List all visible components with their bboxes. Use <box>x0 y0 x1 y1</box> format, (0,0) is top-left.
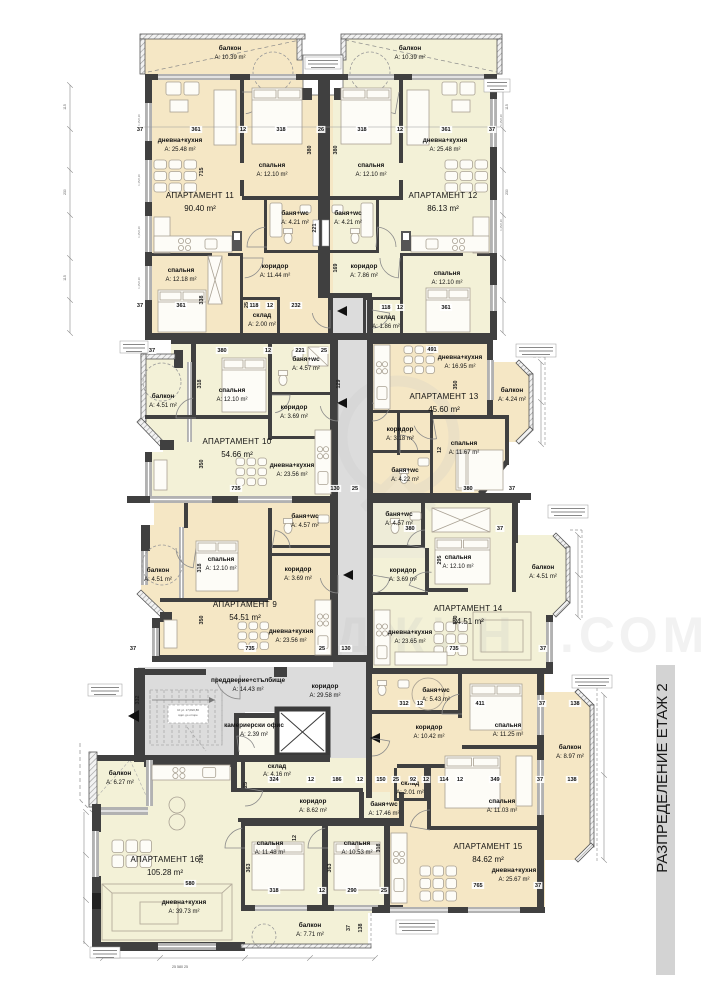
svg-text:балкон: балкон <box>219 44 242 52</box>
svg-text:1F ул. 17,09/2,86: 1F ул. 17,09/2,86 <box>177 708 199 712</box>
svg-text:балкон: балкон <box>299 921 322 929</box>
svg-text:338: 338 <box>199 296 205 305</box>
svg-text:А: 8.97 m²: А: 8.97 m² <box>556 754 584 760</box>
svg-text:спальня: спальня <box>344 840 371 847</box>
svg-text:118: 118 <box>249 303 258 309</box>
svg-text:А: 11.03 m²: А: 11.03 m² <box>487 808 518 814</box>
svg-text:А: 29.58 m²: А: 29.58 m² <box>309 693 340 699</box>
svg-text:А: 11.48 m²: А: 11.48 m² <box>255 850 286 856</box>
svg-text:37: 37 <box>130 646 136 652</box>
svg-text:780: 780 <box>199 855 205 864</box>
svg-text:138: 138 <box>358 924 364 933</box>
svg-text:дневна+кухня: дневна+кухня <box>423 137 468 144</box>
svg-text:361: 361 <box>441 305 450 311</box>
svg-text:спальня: спальня <box>358 162 385 169</box>
svg-text:318: 318 <box>357 127 366 133</box>
svg-text:дневна+кухня: дневна+кухня <box>162 899 207 906</box>
svg-text:А: 3.69 m²: А: 3.69 m² <box>280 414 308 420</box>
svg-text:25: 25 <box>393 777 399 783</box>
svg-text:350: 350 <box>453 616 459 625</box>
svg-text:балкон: балкон <box>152 392 175 400</box>
svg-text:12: 12 <box>240 127 246 133</box>
svg-text:380: 380 <box>307 146 313 155</box>
svg-text:А: 7.86 m²: А: 7.86 m² <box>350 273 378 279</box>
svg-text:А: 1.86 m²: А: 1.86 m² <box>372 324 400 330</box>
svg-text:камериерски офис: камериерски офис <box>224 722 284 729</box>
svg-text:коридор: коридор <box>300 798 327 805</box>
svg-text:25: 25 <box>352 486 358 492</box>
svg-text:склад: склад <box>377 314 396 321</box>
svg-text:318: 318 <box>197 564 203 573</box>
svg-text:349: 349 <box>490 777 499 783</box>
svg-text:А: 25.67 m²: А: 25.67 m² <box>498 877 529 883</box>
svg-text:А: 12.10 m²: А: 12.10 m² <box>205 566 236 572</box>
svg-text:баня+wc: баня+wc <box>334 209 362 217</box>
svg-text:84.62 m²: 84.62 m² <box>472 855 504 864</box>
svg-text:37: 37 <box>346 925 352 931</box>
svg-text:А: 3.18 m²: А: 3.18 m² <box>386 436 414 442</box>
svg-text:спальня: спальня <box>259 162 286 169</box>
svg-text:37: 37 <box>537 777 543 783</box>
svg-text:332: 332 <box>135 696 141 705</box>
svg-text:А: 39.73 m²: А: 39.73 m² <box>168 909 199 915</box>
svg-text:А: 4.21 m²: А: 4.21 m² <box>281 220 309 226</box>
svg-text:баня+wc: баня+wc <box>281 209 309 217</box>
svg-text:преддверие+стълбище: преддверие+стълбище <box>211 676 286 684</box>
svg-text:А: 12.10 m²: А: 12.10 m² <box>256 172 287 178</box>
svg-text:А: 4.24 m²: А: 4.24 m² <box>498 397 526 403</box>
svg-text:А: 4.51 m²: А: 4.51 m² <box>149 403 177 409</box>
svg-text:715: 715 <box>199 168 205 177</box>
svg-text:25: 25 <box>319 646 325 652</box>
svg-text:АПАРТАМЕНТ 13: АПАРТАМЕНТ 13 <box>410 392 479 401</box>
svg-text:115: 115 <box>63 275 67 281</box>
svg-text:баня+wc: баня+wc <box>385 510 413 518</box>
svg-text:коридор: коридор <box>387 426 414 433</box>
svg-text:А: 12.10 m²: А: 12.10 m² <box>431 280 462 286</box>
svg-text:318: 318 <box>276 127 285 133</box>
svg-text:25: 25 <box>244 302 250 308</box>
svg-text:дневна+кухня: дневна+кухня <box>492 867 537 874</box>
svg-text:баня+wc: баня+wc <box>391 466 419 474</box>
svg-text:37: 37 <box>137 127 143 133</box>
svg-text:295: 295 <box>437 556 443 565</box>
svg-text:А: 10.39 m²: А: 10.39 m² <box>214 55 245 61</box>
svg-text:54.51 m²: 54.51 m² <box>229 613 261 622</box>
svg-text:балкон: балкон <box>399 44 422 52</box>
svg-text:А: 7.71 m²: А: 7.71 m² <box>296 932 324 938</box>
svg-text:1,15/2,30: 1,15/2,30 <box>137 277 141 289</box>
svg-text:37: 37 <box>509 486 515 492</box>
svg-text:АПАРТАМЕНТ 10: АПАРТАМЕНТ 10 <box>203 437 272 446</box>
svg-text:735: 735 <box>449 646 458 652</box>
svg-text:12: 12 <box>292 835 298 841</box>
svg-text:361: 361 <box>441 127 450 133</box>
svg-text:спальня: спальня <box>489 798 516 805</box>
svg-text:25 580 25: 25 580 25 <box>172 965 188 969</box>
svg-text:балкон: балкон <box>109 769 132 777</box>
svg-text:склад: склад <box>268 763 287 770</box>
svg-text:411: 411 <box>475 701 484 707</box>
svg-text:735: 735 <box>245 646 254 652</box>
svg-text:12: 12 <box>423 777 429 783</box>
svg-text:А: 10.53 m²: А: 10.53 m² <box>341 850 372 856</box>
svg-text:дневна+кухня: дневна+кухня <box>269 628 314 635</box>
svg-text:А: 4.51 m²: А: 4.51 m² <box>529 574 557 580</box>
svg-text:А: 12.10 m²: А: 12.10 m² <box>442 564 473 570</box>
svg-text:12: 12 <box>319 888 325 894</box>
svg-text:РАЗПРЕДЕЛЕНИЕ ЕТАЖ 2: РАЗПРЕДЕЛЕНИЕ ЕТАЖ 2 <box>654 683 671 873</box>
svg-text:А: 8.62 m²: А: 8.62 m² <box>299 808 327 814</box>
svg-text:АПАРТАМЕНТ 11: АПАРТАМЕНТ 11 <box>166 191 235 200</box>
svg-text:А: 14.43 m²: А: 14.43 m² <box>232 687 263 693</box>
svg-text:12: 12 <box>457 777 463 783</box>
svg-text:А: 12.10 m²: А: 12.10 m² <box>355 172 386 178</box>
svg-text:12: 12 <box>417 701 423 707</box>
svg-text:138: 138 <box>570 701 579 707</box>
svg-text:коридор: коридор <box>262 263 289 270</box>
svg-text:130: 130 <box>341 646 350 652</box>
svg-text:37: 37 <box>540 646 546 652</box>
svg-text:230: 230 <box>505 189 509 195</box>
svg-text:350: 350 <box>199 616 205 625</box>
svg-text:221: 221 <box>312 224 318 233</box>
svg-text:А: 2.00 m²: А: 2.00 m² <box>248 322 276 328</box>
svg-text:балкон: балкон <box>501 386 524 394</box>
svg-text:318: 318 <box>376 844 382 853</box>
svg-text:спальня: спальня <box>257 840 284 847</box>
svg-text:А: 16.95 m²: А: 16.95 m² <box>444 364 475 370</box>
svg-text:А: 23.56 m²: А: 23.56 m² <box>275 638 306 644</box>
svg-text:А: 4.51 m²: А: 4.51 m² <box>144 577 172 583</box>
svg-text:балкон: балкон <box>559 743 582 751</box>
svg-text:232: 232 <box>291 303 300 309</box>
svg-text:А: 2.01 m²: А: 2.01 m² <box>396 790 424 796</box>
svg-text:А: 23.65 m²: А: 23.65 m² <box>394 639 425 645</box>
svg-text:380: 380 <box>217 348 226 354</box>
svg-text:25: 25 <box>243 782 249 788</box>
svg-text:90.40 m²: 90.40 m² <box>184 204 216 213</box>
svg-text:коридор: коридор <box>312 683 339 690</box>
svg-text:1,15/2,30: 1,15/2,30 <box>137 114 141 126</box>
svg-text:324: 324 <box>269 777 279 783</box>
svg-text:37: 37 <box>489 127 495 133</box>
svg-text:129: 129 <box>336 380 342 389</box>
svg-text:вдиг. до отгоре: вдиг. до отгоре <box>178 713 198 717</box>
svg-text:баня+wc: баня+wc <box>292 355 320 363</box>
svg-text:1,15/2,30: 1,15/2,30 <box>137 226 141 238</box>
svg-text:баня+wc: баня+wc <box>422 686 450 694</box>
svg-text:А: 3.69 m²: А: 3.69 m² <box>389 577 417 583</box>
svg-text:169: 169 <box>333 264 339 273</box>
svg-text:коридор: коридор <box>390 567 417 574</box>
svg-text:318: 318 <box>197 380 203 389</box>
svg-text:А: 11.44 m²: А: 11.44 m² <box>260 273 291 279</box>
svg-text:коридор: коридор <box>285 566 312 573</box>
svg-text:12: 12 <box>397 305 403 311</box>
svg-text:коридор: коридор <box>351 263 378 270</box>
svg-text:А: 10.39 m²: А: 10.39 m² <box>394 55 425 61</box>
svg-text:дневна+кухня: дневна+кухня <box>158 137 203 144</box>
svg-text:АПАРТАМЕНТ 12: АПАРТАМЕНТ 12 <box>409 191 478 200</box>
svg-text:138: 138 <box>567 777 576 783</box>
svg-text:54.66 m²: 54.66 m² <box>221 450 253 459</box>
svg-text:37: 37 <box>137 303 143 309</box>
svg-text:АПАРТАМЕНТ 14: АПАРТАМЕНТ 14 <box>434 604 503 613</box>
svg-text:А: 4.22 m²: А: 4.22 m² <box>391 477 419 483</box>
svg-text:А: 23.56 m²: А: 23.56 m² <box>276 472 307 478</box>
svg-text:45.60 m²: 45.60 m² <box>428 405 460 414</box>
svg-text:318: 318 <box>269 888 278 894</box>
svg-text:115: 115 <box>505 104 509 110</box>
svg-text:130: 130 <box>330 486 339 492</box>
svg-text:спальня: спальня <box>208 556 235 563</box>
svg-text:АПАРТАМЕНТ 9: АПАРТАМЕНТ 9 <box>213 600 277 609</box>
svg-text:363: 363 <box>327 864 333 873</box>
svg-text:А: 17.46 m²: А: 17.46 m² <box>368 811 399 817</box>
svg-text:491: 491 <box>427 347 436 353</box>
svg-text:АПАРТАМЕНТ 16: АПАРТАМЕНТ 16 <box>131 855 200 864</box>
svg-text:А: 5.43 m²: А: 5.43 m² <box>422 697 450 703</box>
svg-text:баня+wc: баня+wc <box>370 800 398 808</box>
svg-text:спальня: спальня <box>219 387 246 394</box>
svg-text:25: 25 <box>321 348 327 354</box>
svg-text:А: 4.57 m²: А: 4.57 m² <box>292 366 320 372</box>
svg-text:350: 350 <box>453 381 459 390</box>
svg-text:А: 25.48 m²: А: 25.48 m² <box>429 147 460 153</box>
svg-text:361: 361 <box>176 303 185 309</box>
svg-text:балкон: балкон <box>147 566 170 574</box>
svg-text:склад: склад <box>253 312 272 319</box>
svg-text:580: 580 <box>185 881 194 887</box>
svg-text:коридор: коридор <box>281 404 308 411</box>
svg-text:37: 37 <box>535 883 541 889</box>
svg-text:А: 11.25 m²: А: 11.25 m² <box>493 732 524 738</box>
svg-text:380: 380 <box>463 486 472 492</box>
svg-text:92: 92 <box>410 777 416 783</box>
svg-text:25: 25 <box>381 888 387 894</box>
svg-text:1,15/2,30: 1,15/2,30 <box>499 114 503 126</box>
svg-text:спальня: спальня <box>495 722 522 729</box>
svg-text:380: 380 <box>333 146 339 155</box>
svg-text:12: 12 <box>267 303 273 309</box>
svg-text:баня+wc: баня+wc <box>291 512 319 520</box>
svg-text:дневна+кухня: дневна+кухня <box>270 462 315 469</box>
svg-text:А: 4.21 m²: А: 4.21 m² <box>334 220 362 226</box>
svg-text:186: 186 <box>332 777 341 783</box>
svg-text:А: 2.39 m²: А: 2.39 m² <box>240 732 268 738</box>
svg-text:361: 361 <box>191 127 200 133</box>
svg-text:А: 6.27 m²: А: 6.27 m² <box>106 780 134 786</box>
svg-text:118: 118 <box>381 305 390 311</box>
svg-text:А: 3.69 m²: А: 3.69 m² <box>284 576 312 582</box>
svg-text:221: 221 <box>295 348 304 354</box>
svg-text:350: 350 <box>199 460 205 469</box>
svg-text:дневна+кухня: дневна+кухня <box>438 354 483 361</box>
svg-text:А: 4.57 m²: А: 4.57 m² <box>291 523 319 529</box>
svg-text:А: 11.67 m²: А: 11.67 m² <box>449 450 480 456</box>
svg-text:А: 25.48 m²: А: 25.48 m² <box>164 147 195 153</box>
svg-text:спальня: спальня <box>168 267 195 274</box>
svg-text:1,15/2,30: 1,15/2,30 <box>137 174 141 186</box>
svg-text:363: 363 <box>246 864 252 873</box>
svg-text:АПАРТАМЕНТ 15: АПАРТАМЕНТ 15 <box>454 842 523 851</box>
svg-text:коридор: коридор <box>416 724 443 731</box>
svg-text:37: 37 <box>539 701 545 707</box>
svg-text:балкон: балкон <box>532 563 555 571</box>
svg-text:380: 380 <box>405 526 414 532</box>
svg-text:765: 765 <box>473 883 482 889</box>
svg-text:230: 230 <box>63 189 67 195</box>
svg-text:37: 37 <box>497 526 503 532</box>
svg-text:86.13 m²: 86.13 m² <box>427 204 459 213</box>
svg-text:12: 12 <box>308 777 314 783</box>
svg-text:спальня: спальня <box>434 270 461 277</box>
svg-text:735: 735 <box>231 486 240 492</box>
svg-text:105.28 m²: 105.28 m² <box>147 868 183 877</box>
svg-text:37: 37 <box>149 348 155 354</box>
svg-text:А: 10.42 m²: А: 10.42 m² <box>413 734 444 740</box>
svg-text:спальня: спальня <box>451 440 478 447</box>
svg-text:114: 114 <box>439 777 449 783</box>
svg-text:12: 12 <box>397 127 403 133</box>
svg-text:150: 150 <box>376 777 385 783</box>
svg-text:290: 290 <box>347 888 356 894</box>
svg-text:А: 12.10 m²: А: 12.10 m² <box>216 397 247 403</box>
svg-text:12: 12 <box>265 348 271 354</box>
svg-text:А: 12.18 m²: А: 12.18 m² <box>165 277 196 283</box>
svg-text:дневна+кухня: дневна+кухня <box>388 629 433 636</box>
svg-text:12: 12 <box>357 777 363 783</box>
svg-text:спальня: спальня <box>445 554 472 561</box>
svg-text:312: 312 <box>399 701 408 707</box>
svg-text:26: 26 <box>318 127 324 133</box>
svg-text:1,15/2,30: 1,15/2,30 <box>499 219 503 231</box>
svg-text:12: 12 <box>437 447 443 453</box>
svg-text:115: 115 <box>63 104 67 110</box>
